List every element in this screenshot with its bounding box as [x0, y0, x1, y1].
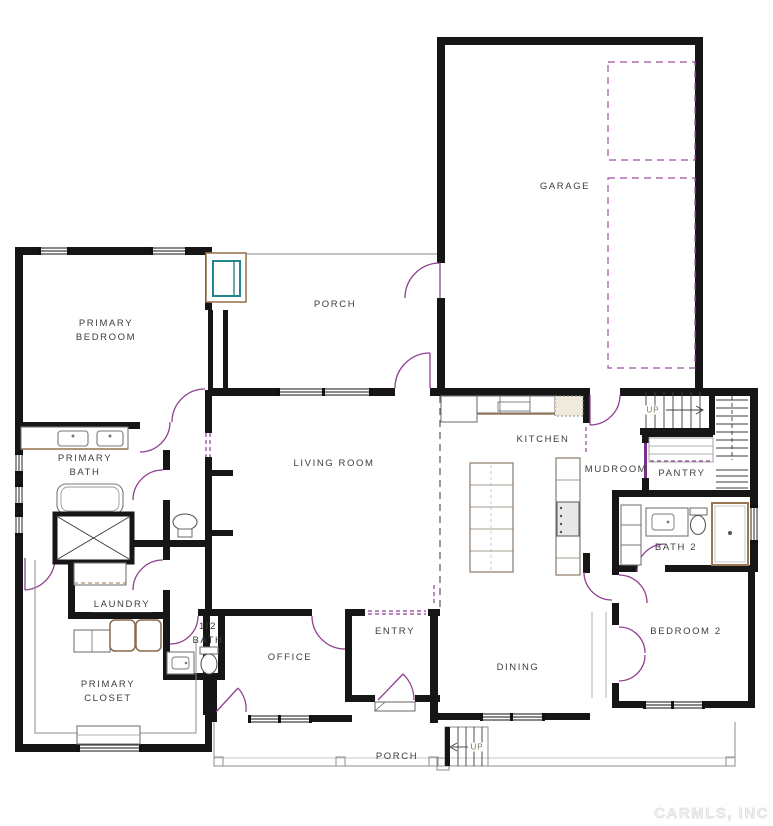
bedroom2-closet-shelves [592, 612, 606, 698]
bath2-shower-icon [712, 503, 748, 565]
water-closet-door [133, 470, 163, 500]
stairs-up-label-exterior: UP [469, 743, 484, 752]
front-door [403, 674, 414, 700]
stairs-up-label-interior: UP [645, 406, 660, 415]
porch-bench-icon [206, 253, 246, 302]
room-label-bedroom-2: BEDROOM 2 [650, 625, 721, 639]
bedroom2-closet-door-top [619, 627, 645, 653]
primary-closet-door [25, 558, 55, 590]
half-bath-toilet-icon [200, 647, 218, 674]
garage-mudroom-door [590, 395, 620, 425]
entry-threshold [375, 702, 415, 711]
porch-garage-door [405, 263, 440, 298]
bath2-vanity-icon [646, 508, 688, 536]
bedroom2-closet-door-bottom [619, 655, 645, 681]
kitchen-cabinet-dashed [555, 396, 583, 416]
primary-bath-door [140, 422, 170, 452]
room-label-primary-bedroom: PRIMARY BEDROOM [76, 317, 136, 345]
bedroom2-door [619, 575, 647, 603]
office-porch-door [238, 688, 246, 712]
laundry-counter-icon [74, 563, 126, 585]
laundry-door [133, 560, 163, 590]
room-label-entry: ENTRY [375, 625, 415, 639]
garage-door-dashed [608, 62, 695, 368]
stair-landing-hatch [716, 396, 748, 488]
room-label-laundry: LAUNDRY [92, 598, 152, 612]
bath2-toilet-icon [690, 508, 707, 535]
washer-dryer-icon [74, 620, 161, 652]
bathtub-icon [57, 484, 123, 514]
kitchen-counter-icon [477, 396, 583, 416]
pantry-shelves [649, 438, 713, 462]
kitchen-side-counter-icon [556, 458, 580, 575]
office-door [312, 616, 345, 649]
room-label-primary-bath: PRIMARY BATH [58, 452, 112, 480]
primary-vanity-icon [21, 427, 128, 449]
room-label-living-room: LIVING ROOM [294, 457, 375, 471]
room-label-front-porch: PORCH [376, 750, 418, 764]
half-bath-sink-icon [167, 652, 194, 674]
room-label-primary-closet: PRIMARY CLOSET [81, 678, 135, 706]
mudroom-lockers-icon [621, 505, 641, 565]
room-label-half-bath: 1/2 BATH [192, 620, 223, 648]
shower-icon [55, 514, 132, 562]
watermark: CARMLS, INC [654, 805, 769, 822]
room-label-office: OFFICE [268, 651, 312, 665]
porch-living-door [395, 353, 430, 388]
room-label-mudroom: MUDROOM [585, 463, 647, 477]
room-label-garage: GARAGE [540, 180, 590, 194]
primary-toilet-icon [173, 514, 197, 537]
room-label-pantry: PANTRY [658, 467, 705, 481]
room-label-bath-2: BATH 2 [655, 541, 697, 555]
mudroom-hall-door [584, 572, 612, 600]
room-label-dining: DINING [497, 661, 540, 675]
kitchen-island-icon [470, 463, 513, 572]
floor-plan: GARAGE PORCH PRIMARY BEDROOM PRIMARY BAT… [0, 0, 773, 826]
room-label-back-porch: PORCH [314, 298, 356, 312]
room-label-kitchen: KITCHEN [517, 433, 570, 447]
fridge-icon [441, 396, 477, 422]
primary-bedroom-door [172, 389, 205, 422]
